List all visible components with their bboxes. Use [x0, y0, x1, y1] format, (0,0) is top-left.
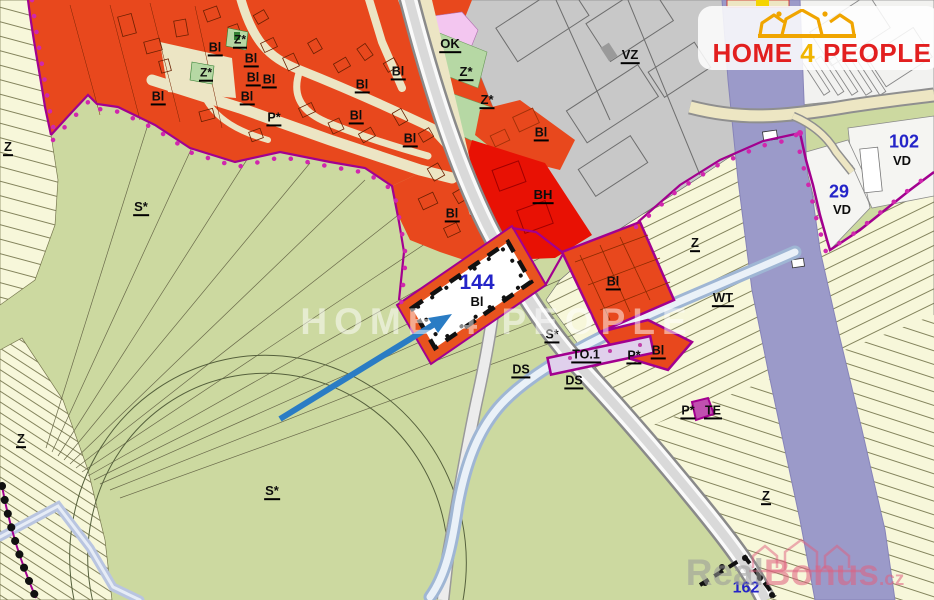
agency-logo-text: HOME 4 PEOPLE [710, 38, 934, 69]
map-label: P* [626, 349, 641, 364]
map-label: Bl [403, 132, 418, 147]
realbonus-cz: .cz [879, 569, 904, 590]
map-label: P* [680, 404, 695, 419]
map-label: VD [833, 203, 851, 217]
map-label: TE [704, 404, 722, 419]
map-label: Z* [459, 65, 474, 81]
map-label: Bl [246, 71, 261, 86]
logo-people: PEOPLE [823, 38, 931, 68]
map-label: Bl [445, 207, 460, 222]
map-labels-layer: ZZS*S*S*ZZWTVZOKZ*Z*Z*Z*BlBlBlBlBlBlBlBl… [0, 0, 934, 600]
map-label: DS [511, 363, 530, 378]
map-label: S* [133, 200, 149, 216]
map-label: Bl [651, 344, 666, 359]
map-label: S* [264, 484, 280, 500]
map-label: Z [3, 140, 13, 156]
map-label: Bl [355, 78, 370, 93]
map-label: 102 [889, 133, 919, 152]
map-label: Z [761, 489, 771, 505]
map-label: Z* [233, 34, 247, 49]
realbonus-watermark: RealBonus.cz [686, 552, 905, 594]
map-label: BH [533, 188, 554, 204]
map-label: 144 [459, 272, 494, 294]
map-label: Z [16, 432, 26, 448]
map-label: OK [439, 37, 461, 53]
center-watermark: HOME 4 PEOPLE [300, 301, 693, 343]
logo-4: 4 [800, 38, 815, 68]
realbonus-bonus: Bonus [764, 552, 879, 593]
logo-home: HOME [713, 38, 793, 68]
map-label: Bl [391, 65, 406, 80]
map-label: DS [564, 374, 583, 389]
map-label: VD [893, 154, 911, 168]
map-label: Bl [349, 109, 364, 124]
map-label: Bl [244, 52, 259, 67]
zoning-map-screenshot: ZZS*S*S*ZZWTVZOKZ*Z*Z*Z*BlBlBlBlBlBlBlBl… [0, 0, 934, 600]
map-label: Z* [199, 67, 213, 82]
realbonus-real: Real [686, 552, 764, 593]
map-label: Bl [262, 73, 277, 88]
map-label: Bl [208, 41, 223, 56]
map-label: Bl [151, 90, 166, 105]
map-label: WT [712, 291, 734, 307]
map-label: Z [690, 236, 700, 252]
map-label: Z* [480, 93, 495, 109]
map-label: VZ [621, 48, 640, 64]
map-label: Bl [606, 275, 621, 290]
map-label: 29 [829, 183, 849, 202]
map-label: TO.1 [571, 348, 601, 363]
map-label: P* [266, 111, 281, 126]
map-label: Bl [240, 90, 255, 105]
map-label: Bl [534, 126, 549, 141]
